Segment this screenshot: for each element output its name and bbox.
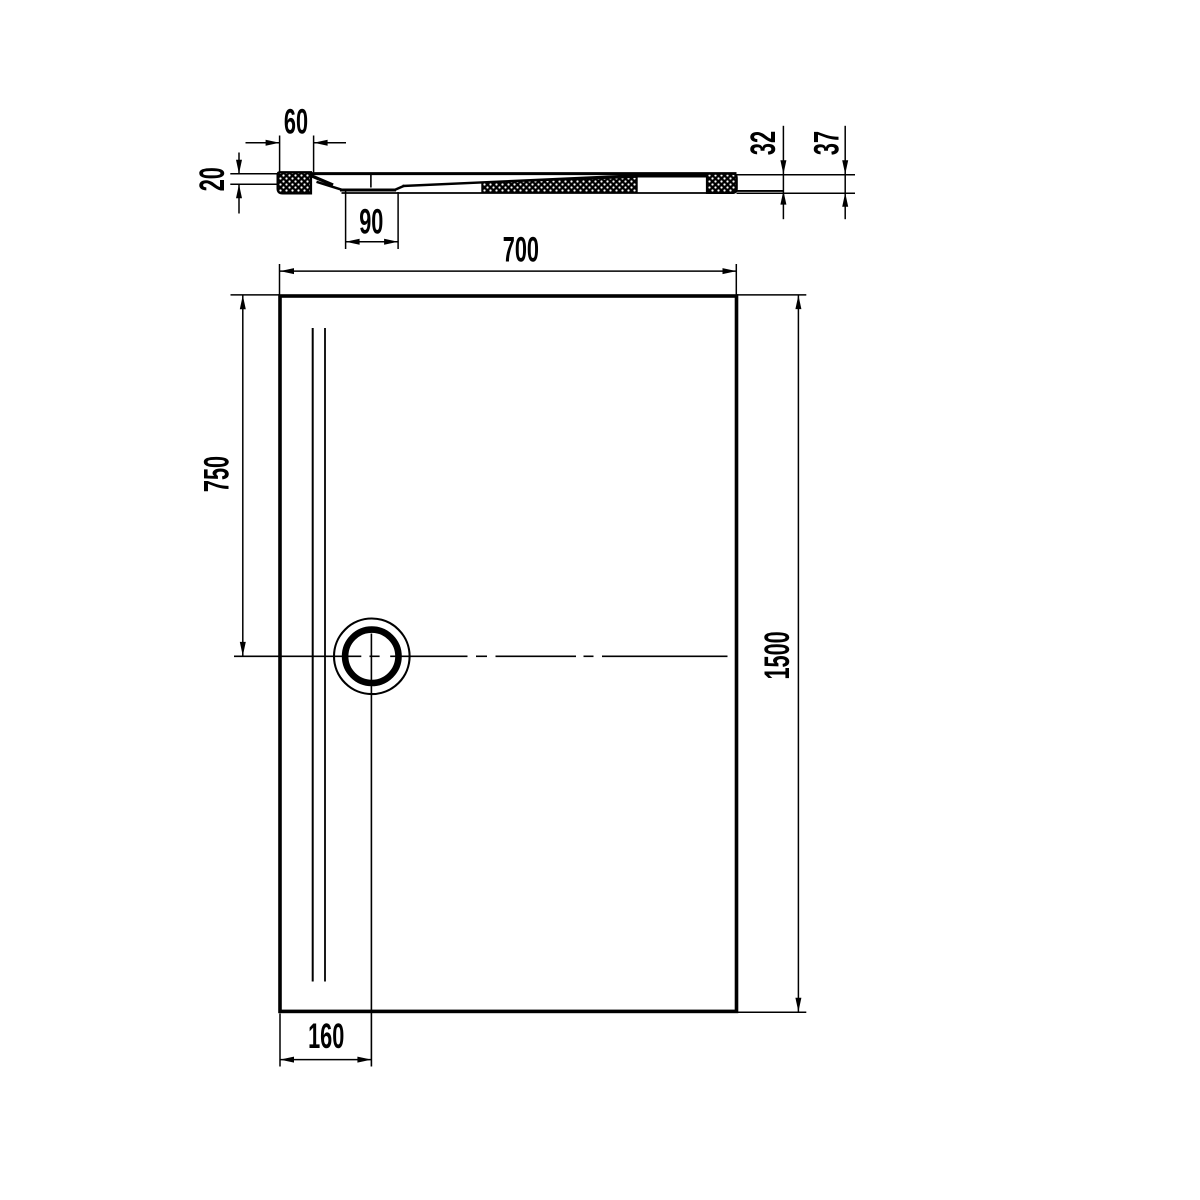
svg-text:90: 90 xyxy=(359,204,383,242)
svg-text:20: 20 xyxy=(194,167,232,191)
svg-text:32: 32 xyxy=(745,131,783,155)
svg-text:700: 700 xyxy=(503,231,539,269)
svg-text:37: 37 xyxy=(809,131,847,155)
svg-text:160: 160 xyxy=(308,1018,344,1056)
svg-text:60: 60 xyxy=(284,103,308,141)
svg-text:750: 750 xyxy=(198,456,236,492)
svg-text:1500: 1500 xyxy=(759,631,797,679)
